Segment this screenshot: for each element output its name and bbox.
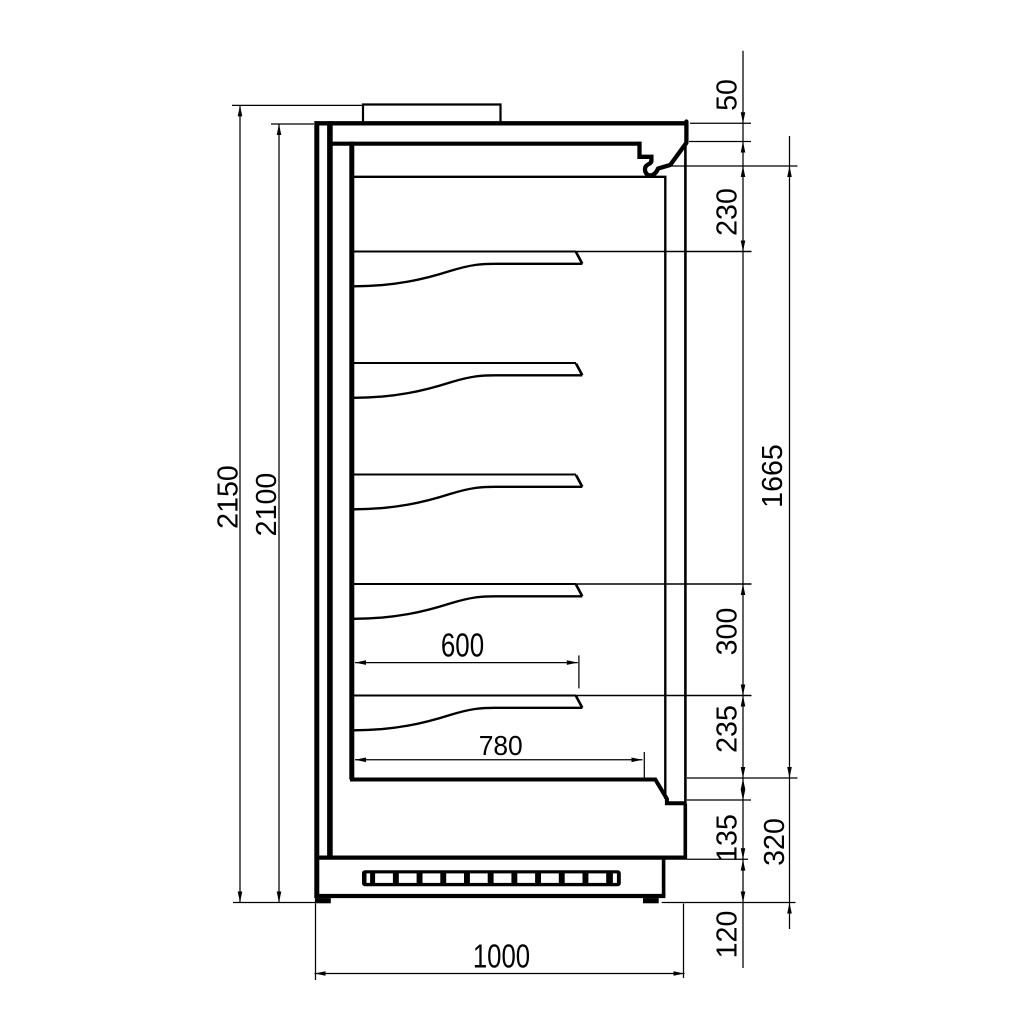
svg-text:300: 300: [712, 608, 744, 656]
svg-text:50: 50: [712, 79, 744, 111]
svg-text:1000: 1000: [473, 939, 530, 976]
svg-text:320: 320: [759, 818, 791, 866]
svg-text:2150: 2150: [213, 465, 245, 529]
svg-text:135: 135: [712, 814, 744, 862]
svg-text:235: 235: [712, 705, 744, 753]
svg-text:230: 230: [712, 188, 744, 236]
svg-text:780: 780: [479, 731, 523, 762]
svg-text:2100: 2100: [251, 473, 283, 537]
svg-text:120: 120: [712, 911, 744, 959]
svg-text:600: 600: [441, 628, 484, 665]
svg-text:1665: 1665: [757, 444, 789, 508]
